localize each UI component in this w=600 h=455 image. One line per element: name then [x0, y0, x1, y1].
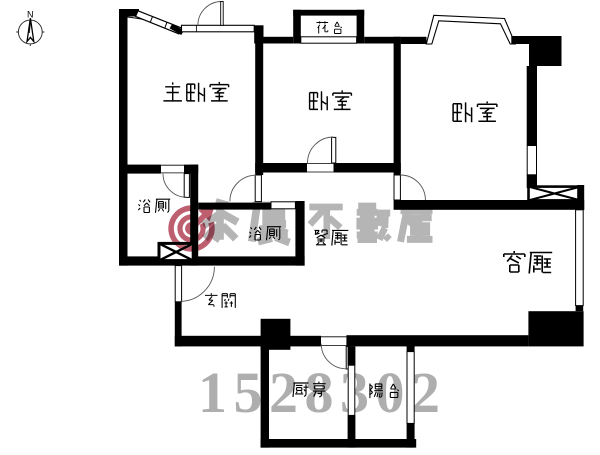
svg-text:N: N	[27, 10, 34, 20]
